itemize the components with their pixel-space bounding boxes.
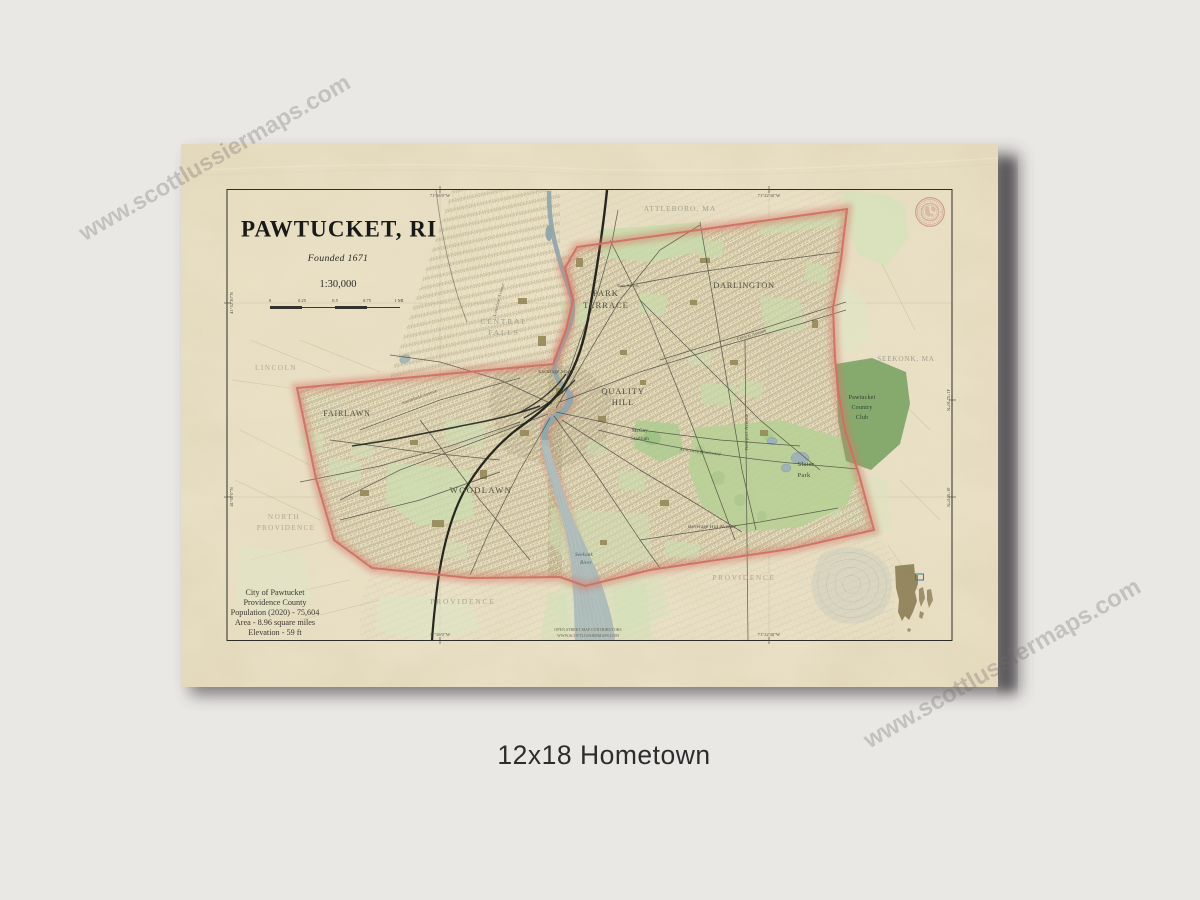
svg-text:1:30,000: 1:30,000 — [319, 279, 356, 290]
svg-text:Park: Park — [797, 472, 811, 479]
svg-text:McCoy: McCoy — [632, 429, 648, 434]
svg-text:Country: Country — [851, 405, 872, 411]
svg-text:FAIRLAWN: FAIRLAWN — [323, 409, 370, 418]
svg-text:0.25: 0.25 — [298, 298, 307, 303]
svg-text:Stadium: Stadium — [631, 437, 649, 442]
svg-text:WWW.SCOTTLUSSIERMAPS.COM: WWW.SCOTTLUSSIERMAPS.COM — [557, 633, 619, 638]
svg-text:LINCOLN: LINCOLN — [255, 364, 297, 372]
svg-text:Newport Avenue: Newport Avenue — [745, 413, 750, 450]
svg-text:41°52'30"N: 41°52'30"N — [229, 291, 234, 313]
svg-text:Elevation - 59 ft: Elevation - 59 ft — [248, 628, 302, 637]
svg-text:71°22'30"W: 71°22'30"W — [758, 193, 781, 198]
svg-text:Seekonk: Seekonk — [575, 553, 593, 558]
svg-text:Providence County: Providence County — [244, 598, 308, 607]
svg-text:0.5: 0.5 — [332, 298, 338, 303]
svg-text:0.75: 0.75 — [363, 298, 372, 303]
svg-text:OPEN STREET MAP CONTRIBUTORS: OPEN STREET MAP CONTRIBUTORS — [554, 627, 621, 632]
svg-text:NORTH: NORTH — [268, 513, 300, 521]
svg-text:QUALITY: QUALITY — [601, 386, 644, 396]
svg-text:Slater: Slater — [798, 461, 815, 468]
svg-text:41°50'0"N: 41°50'0"N — [229, 487, 234, 507]
svg-text:TERRACE: TERRACE — [583, 300, 629, 310]
svg-text:WOODLAWN: WOODLAWN — [450, 485, 512, 495]
svg-text:Founded 1671: Founded 1671 — [307, 253, 368, 264]
svg-text:SEEKONK, MA: SEEKONK, MA — [877, 355, 935, 363]
svg-text:Beverage Hill Avenue: Beverage Hill Avenue — [688, 525, 737, 530]
svg-text:71°22'30"W: 71°22'30"W — [758, 632, 781, 637]
svg-text:ATTLEBORO, MA: ATTLEBORO, MA — [644, 204, 717, 213]
svg-text:PROVIDENCE: PROVIDENCE — [712, 573, 776, 582]
svg-text:FALLS: FALLS — [488, 328, 519, 337]
svg-text:71°26'0"W: 71°26'0"W — [430, 193, 451, 198]
svg-text:PROVIDENCE: PROVIDENCE — [430, 597, 496, 606]
svg-text:CENTRAL: CENTRAL — [480, 317, 527, 326]
svg-text:Exchange Street: Exchange Street — [538, 370, 574, 375]
svg-text:HILL: HILL — [612, 397, 635, 407]
svg-text:PAWTUCKET, RI: PAWTUCKET, RI — [241, 217, 437, 242]
svg-text:East Street: East Street — [617, 283, 639, 288]
svg-text:River: River — [579, 561, 592, 566]
svg-text:1 MI: 1 MI — [394, 298, 404, 303]
svg-text:DARLINGTON: DARLINGTON — [713, 280, 775, 290]
svg-text:41°50'0"N: 41°50'0"N — [946, 487, 951, 507]
svg-text:Area - 8.96 square miles: Area - 8.96 square miles — [235, 618, 315, 627]
svg-text:City of Pawtucket: City of Pawtucket — [245, 588, 305, 597]
svg-text:71°26'0"W: 71°26'0"W — [430, 632, 451, 637]
svg-text:41°52'30"N: 41°52'30"N — [946, 389, 951, 411]
svg-text:Population (2020) - 75,604: Population (2020) - 75,604 — [231, 608, 320, 617]
svg-text:Pawtucket: Pawtucket — [849, 395, 876, 401]
svg-text:Club: Club — [856, 415, 868, 421]
svg-text:PROVIDENCE: PROVIDENCE — [257, 524, 316, 532]
svg-text:PARK: PARK — [593, 288, 619, 298]
